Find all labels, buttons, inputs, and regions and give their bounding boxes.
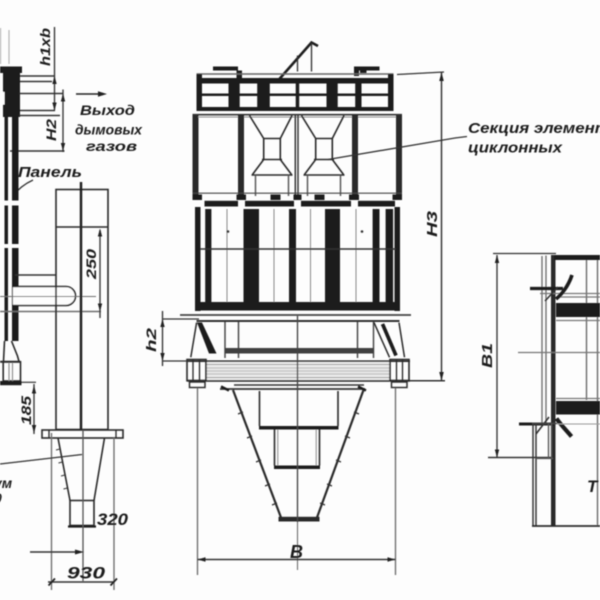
svg-text:185: 185 <box>18 396 34 425</box>
svg-text:320: 320 <box>97 511 129 529</box>
svg-text:0: 0 <box>0 490 2 506</box>
svg-text:ум: ум <box>0 475 13 491</box>
svg-text:930: 930 <box>67 565 106 583</box>
svg-text:H2: H2 <box>43 119 59 141</box>
svg-text:дымовых: дымовых <box>75 122 143 138</box>
svg-text:h2: h2 <box>143 328 159 352</box>
svg-text:циклонных: циклонных <box>468 140 563 157</box>
svg-text:h1xb: h1xb <box>37 27 53 66</box>
svg-text:В: В <box>290 542 303 562</box>
svg-text:Выход: Выход <box>80 102 135 118</box>
svg-text:газов: газов <box>86 138 138 154</box>
svg-text:250: 250 <box>83 249 99 281</box>
svg-text:В1: В1 <box>480 343 496 368</box>
svg-text:Секция элементов: Секция элементов <box>468 120 600 137</box>
svg-text:Т: Т <box>587 477 599 496</box>
svg-text:Панель: Панель <box>18 164 82 181</box>
svg-text:Н3: Н3 <box>425 211 441 237</box>
